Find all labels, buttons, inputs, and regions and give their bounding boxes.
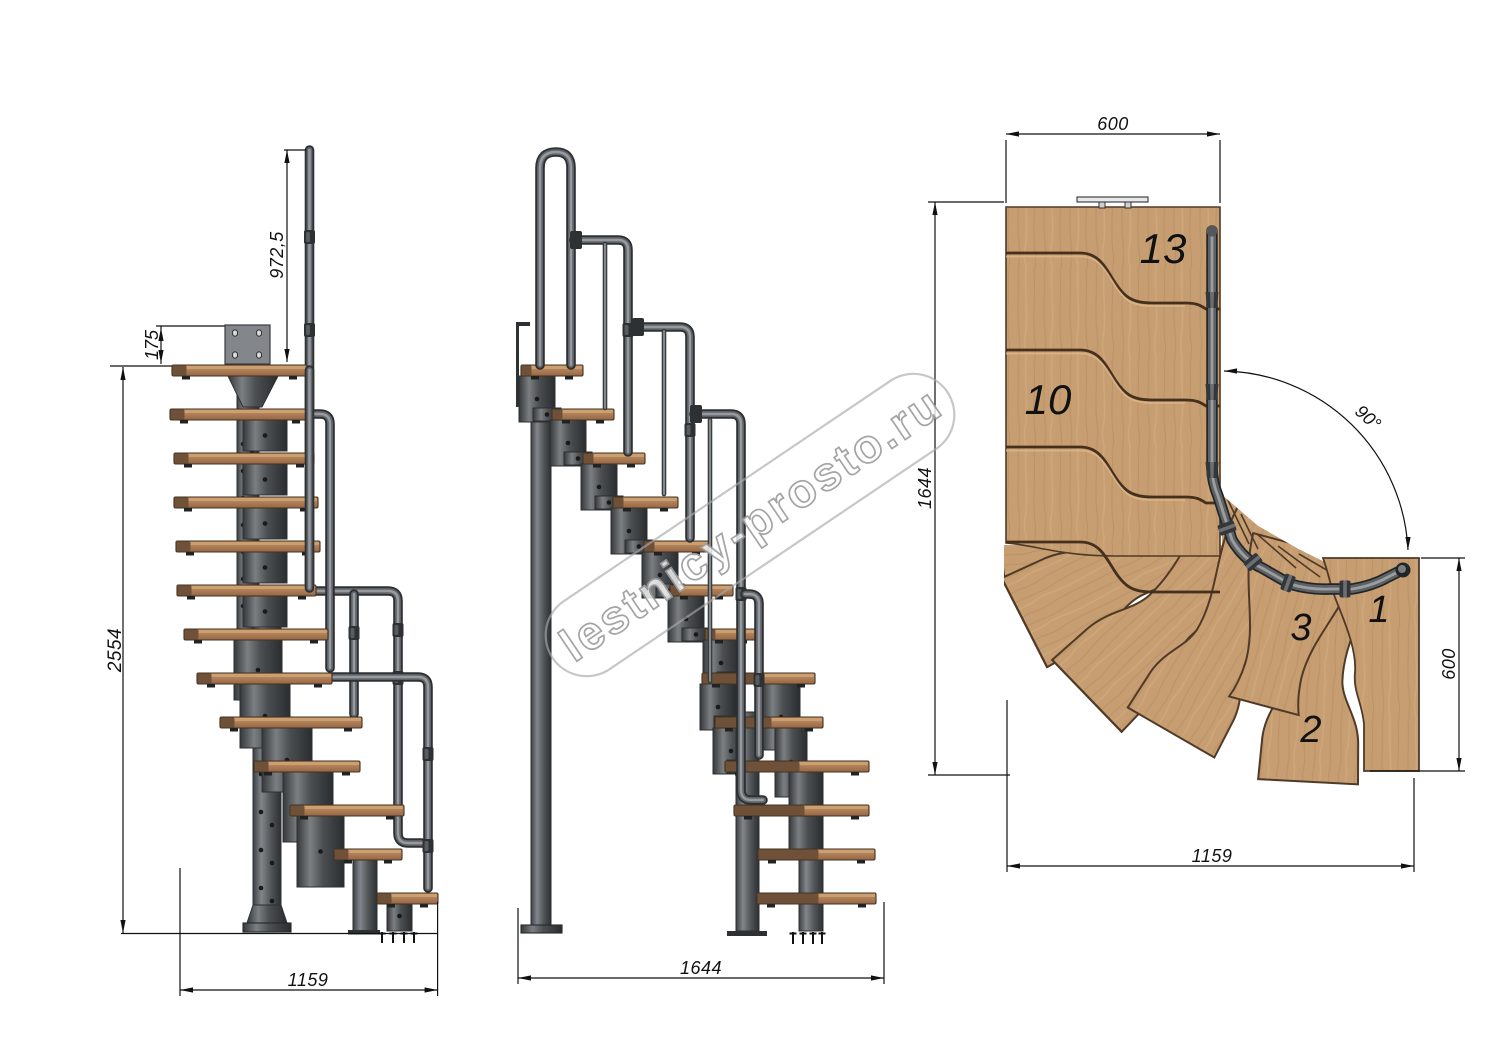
svg-text:600: 600 — [1097, 114, 1129, 134]
svg-text:972,5: 972,5 — [267, 231, 287, 279]
svg-text:1159: 1159 — [288, 970, 329, 990]
svg-text:1644: 1644 — [680, 958, 722, 978]
svg-text:3: 3 — [1290, 607, 1311, 649]
svg-text:175: 175 — [142, 329, 162, 360]
svg-text:2554: 2554 — [105, 628, 126, 673]
svg-text:2: 2 — [1299, 709, 1321, 751]
svg-text:600: 600 — [1439, 648, 1459, 680]
svg-text:13: 13 — [1140, 225, 1187, 272]
svg-text:1644: 1644 — [915, 467, 935, 509]
svg-text:1: 1 — [1368, 589, 1389, 631]
svg-text:1159: 1159 — [1192, 846, 1233, 866]
svg-text:10: 10 — [1025, 376, 1072, 423]
